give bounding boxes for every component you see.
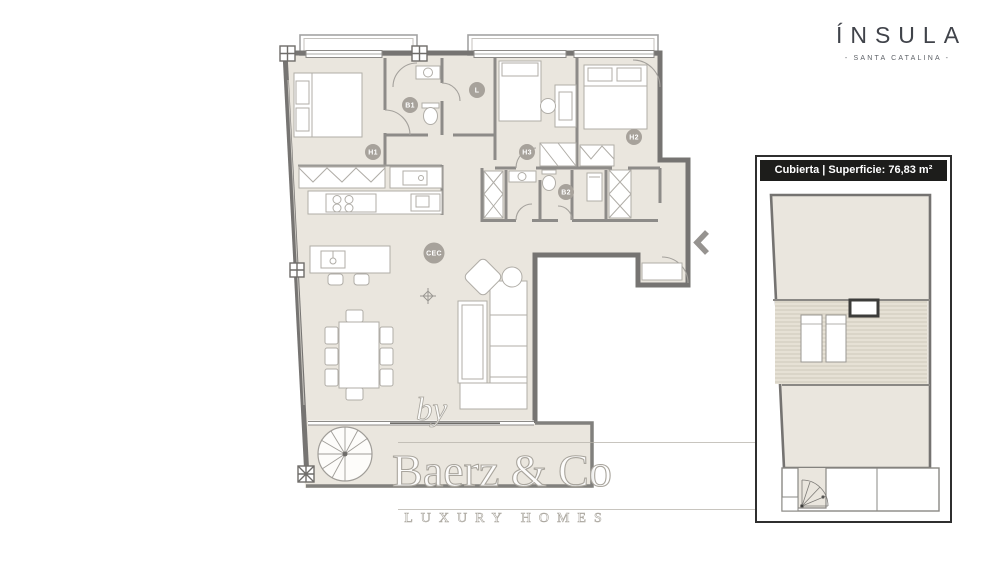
room-label-b2: B2 bbox=[558, 184, 574, 200]
roof-panel: Cubierta | Superficie: 76,83 m² bbox=[755, 155, 952, 523]
side-table bbox=[502, 267, 522, 287]
closet-right-b2 bbox=[609, 170, 631, 218]
room-label-l: L bbox=[469, 82, 485, 98]
svg-text:CEC: CEC bbox=[426, 251, 442, 258]
room-label-h3: H3 bbox=[519, 144, 535, 160]
svg-text:H3: H3 bbox=[522, 150, 532, 157]
svg-text:H2: H2 bbox=[629, 135, 639, 142]
room-label-h2: H2 bbox=[626, 129, 642, 145]
svg-text:L: L bbox=[475, 88, 480, 95]
svg-text:B2: B2 bbox=[561, 190, 571, 197]
floor-plan: H1 B1 L H3 H2 B2 bbox=[270, 25, 710, 505]
closet-h3 bbox=[540, 143, 576, 166]
page: ÍNSULA - SANTA CATALINA - bbox=[0, 0, 1000, 564]
entry-arrow-icon bbox=[697, 232, 707, 253]
brand-name: ÍNSULA bbox=[815, 22, 980, 49]
bed-h2 bbox=[584, 65, 647, 129]
watermark-rule-bottom bbox=[398, 509, 806, 510]
room-label-h1: H1 bbox=[365, 144, 381, 160]
wardrobe-h2 bbox=[580, 145, 614, 166]
windows bbox=[306, 51, 654, 58]
svg-text:B1: B1 bbox=[405, 103, 415, 110]
bed-h1 bbox=[294, 73, 362, 137]
entry-doormat bbox=[642, 263, 682, 280]
brand-logo: ÍNSULA - SANTA CATALINA - bbox=[815, 22, 980, 62]
terrace-sliding-door bbox=[308, 421, 534, 426]
wardrobe-h1 bbox=[299, 167, 385, 188]
watermark-subtitle: LUXURY HOMES bbox=[396, 511, 610, 527]
roof-plan bbox=[757, 184, 950, 521]
spiral-stair-icon bbox=[318, 427, 372, 481]
closet-left-b2 bbox=[484, 171, 503, 218]
svg-text:H1: H1 bbox=[368, 150, 378, 157]
roof-panel-title: Cubierta | Superficie: 76,83 m² bbox=[760, 160, 947, 181]
roof-hatch bbox=[850, 300, 878, 316]
room-label-b1: B1 bbox=[402, 97, 418, 113]
room-label-cec: CEC bbox=[424, 243, 445, 264]
bed-h3 bbox=[499, 61, 541, 121]
brand-tagline: - SANTA CATALINA - bbox=[815, 55, 980, 62]
